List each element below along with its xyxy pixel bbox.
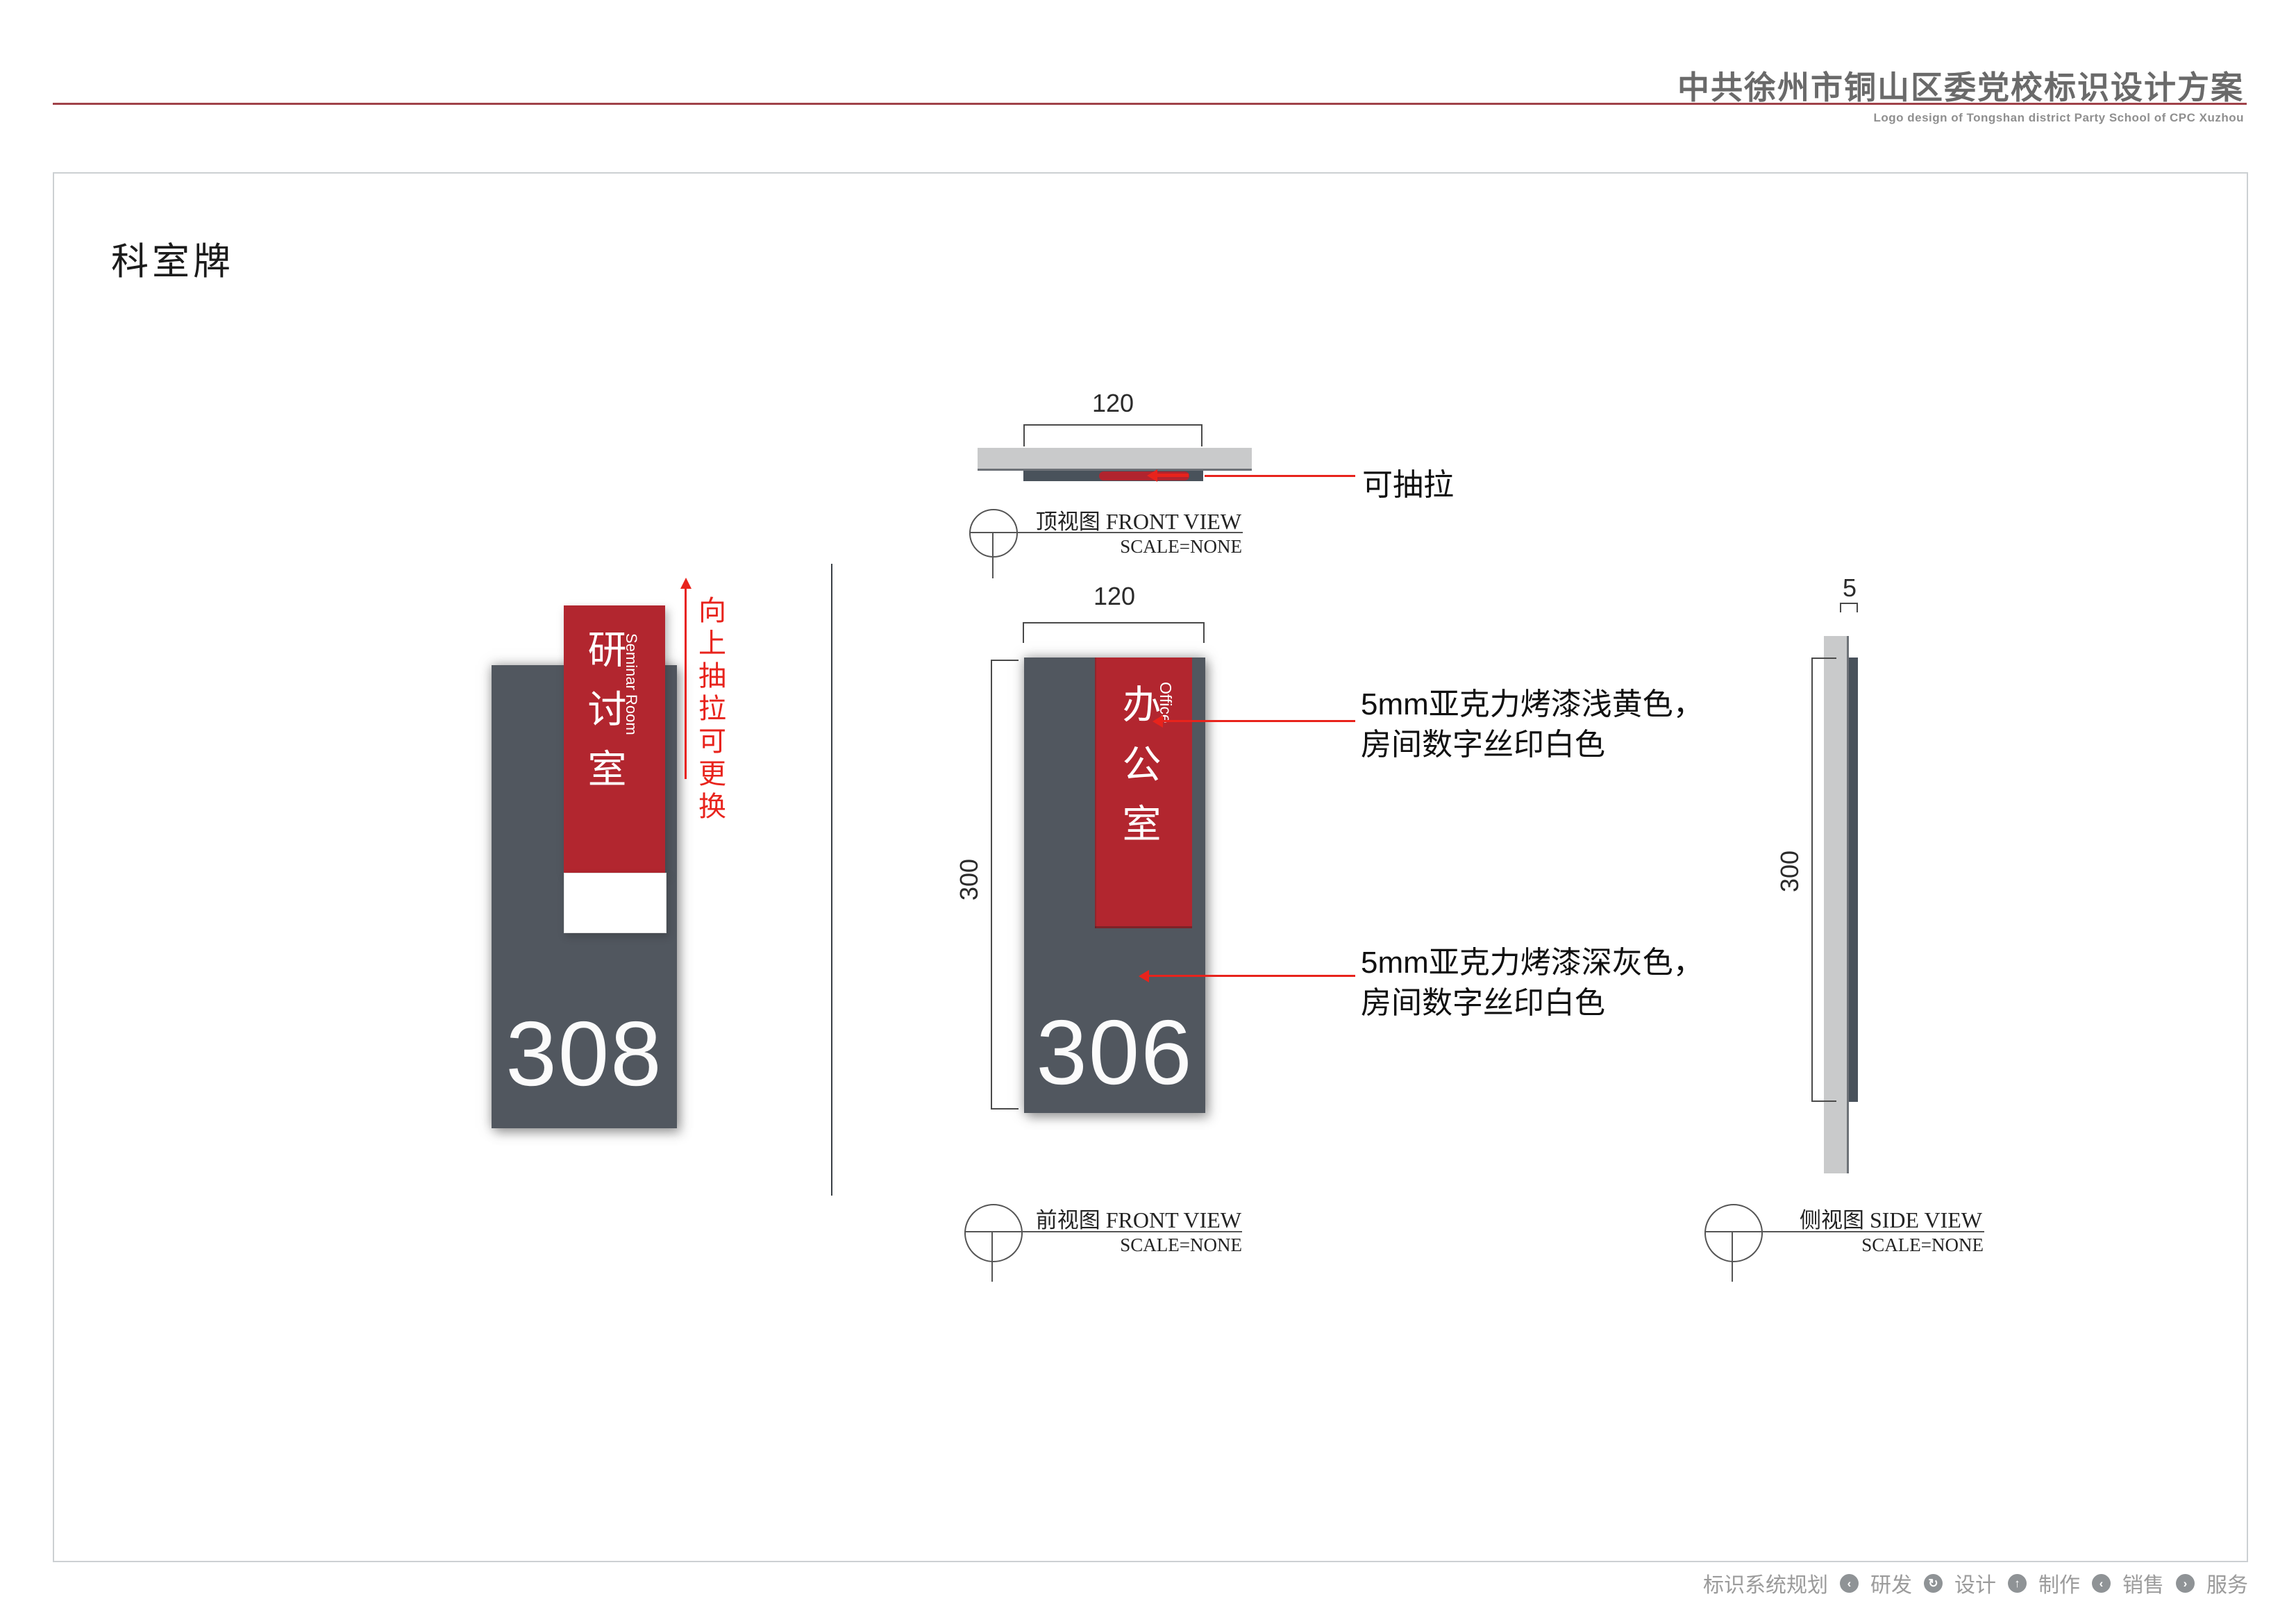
arrow-left2-icon: ‹ xyxy=(2092,1574,2111,1593)
pull-label: 可抽拉 xyxy=(1362,460,1454,504)
pull-leader-line xyxy=(1205,475,1355,477)
top-view-marker-stem xyxy=(992,533,994,578)
seminar-slider-blank xyxy=(564,873,667,933)
footer-process-strip: 标识系统规划 ‹ 研发 ↻ 设计 ↑ 制作 ‹ 销售 › 服务 xyxy=(1703,1568,2248,1598)
side-view-title: 侧视图 SIDE VIEW xyxy=(1768,1203,1982,1234)
callout-top-line1: 5mm亚克力烤漆浅黄色， xyxy=(1361,685,1704,725)
front-height-dim: 300 xyxy=(955,859,984,901)
top-view-marker-circle xyxy=(969,509,1018,558)
footer-item-planning: 标识系统规划 xyxy=(1703,1568,1828,1598)
callout-top-text: 5mm亚克力烤漆浅黄色， 房间数字丝印白色 xyxy=(1361,685,1704,765)
callout-top-leader xyxy=(1162,720,1355,722)
top-dim-bracket xyxy=(1023,424,1203,426)
document-title: 中共徐州市铜山区委党校标识设计方案 xyxy=(1677,62,2244,108)
footer-item-service: 服务 xyxy=(2206,1568,2248,1598)
arrow-rotate-icon: ↻ xyxy=(1924,1574,1943,1593)
callout-bottom-line1: 5mm亚克力烤漆深灰色， xyxy=(1361,943,1704,983)
side-height-bracket xyxy=(1811,658,1813,1102)
office-room-name: 办公室 xyxy=(1119,684,1158,863)
side-thickness-tick-left xyxy=(1840,603,1841,612)
front-width-dim: 120 xyxy=(1045,582,1184,611)
side-view-wall-rail xyxy=(1824,636,1849,1173)
front-width-bracket xyxy=(1023,622,1205,623)
front-height-tick-top xyxy=(991,660,1019,661)
callout-bottom-text: 5mm亚克力烤漆深灰色， 房间数字丝印白色 xyxy=(1361,943,1704,1023)
top-dim-tick-right xyxy=(1201,424,1203,446)
design-sheet: 中共徐州市铜山区委党校标识设计方案 Logo design of Tongsha… xyxy=(0,0,2296,1624)
top-view-width-dim: 120 xyxy=(1044,389,1182,418)
front-width-tick-left xyxy=(1023,622,1024,643)
callout-bottom-line2: 房间数字丝印白色 xyxy=(1361,983,1704,1023)
top-view-title-cn: 顶视图 xyxy=(1036,510,1100,534)
side-height-tick-top xyxy=(1811,658,1836,659)
callout-top-line2: 房间数字丝印白色 xyxy=(1361,725,1704,765)
side-height-dim: 300 xyxy=(1775,851,1804,892)
front-view-title-en: FRONT VIEW xyxy=(1100,1207,1241,1232)
seminar-room-name: 研讨室 xyxy=(585,629,623,808)
top-view-title-en: FRONT VIEW xyxy=(1100,509,1241,534)
footer-item-sales: 销售 xyxy=(2122,1568,2164,1598)
side-view-panel-edge xyxy=(1849,658,1858,1102)
side-thickness-bracket xyxy=(1840,603,1858,604)
front-height-bracket xyxy=(991,660,992,1110)
front-height-tick-bottom xyxy=(991,1108,1019,1110)
front-width-tick-right xyxy=(1203,622,1205,643)
callout-bottom-leader xyxy=(1148,975,1355,977)
document-subtitle: Logo design of Tongshan district Party S… xyxy=(1873,111,2244,125)
front-view-scale: SCALE=NONE xyxy=(1028,1234,1242,1256)
slide-arrow-shaft xyxy=(1157,474,1189,477)
footer-item-production: 制作 xyxy=(2038,1568,2080,1598)
top-dim-tick-left xyxy=(1023,424,1025,446)
seminar-room-name-en: Seminar Room xyxy=(622,633,640,735)
top-view-wall-rail xyxy=(978,448,1252,471)
side-thickness-dim: 5 xyxy=(1815,574,1884,603)
side-view-scale: SCALE=NONE xyxy=(1769,1234,1984,1256)
front-view-marker-stem xyxy=(991,1232,993,1282)
callout-bottom-arrow-icon xyxy=(1139,970,1149,982)
arrow-right-icon: › xyxy=(2176,1574,2195,1593)
section-title: 科室牌 xyxy=(111,231,234,285)
arrow-left-icon: ‹ xyxy=(1840,1574,1859,1593)
side-height-tick-bottom xyxy=(1811,1100,1836,1102)
vertical-divider xyxy=(831,564,832,1196)
pull-up-note: 向上抽拉可更换 xyxy=(696,596,723,824)
slide-arrow-icon xyxy=(1147,469,1157,482)
front-view-marker-circle xyxy=(964,1204,1023,1262)
side-view-marker-stem xyxy=(1732,1232,1733,1282)
seminar-room-number: 308 xyxy=(492,1001,677,1106)
front-view-title: 前视图 FRONT VIEW xyxy=(1028,1203,1241,1234)
footer-item-design: 设计 xyxy=(1954,1568,1996,1598)
header-rule xyxy=(53,103,2247,105)
office-room-number: 306 xyxy=(1024,1000,1205,1105)
callout-top-arrow-icon xyxy=(1153,715,1163,728)
side-view-marker-circle xyxy=(1704,1204,1763,1262)
side-view-title-en: SIDE VIEW xyxy=(1864,1207,1982,1232)
arrow-up-circle-icon: ↑ xyxy=(2008,1574,2027,1593)
top-view-scale: SCALE=NONE xyxy=(1028,536,1242,558)
front-view-title-cn: 前视图 xyxy=(1036,1208,1100,1232)
annotation-arrow-line xyxy=(685,587,687,779)
top-view-title: 顶视图 FRONT VIEW xyxy=(1028,504,1241,535)
side-view-title-cn: 侧视图 xyxy=(1800,1208,1864,1232)
footer-item-rd: 研发 xyxy=(1870,1568,1912,1598)
side-thickness-tick-right xyxy=(1857,603,1858,612)
